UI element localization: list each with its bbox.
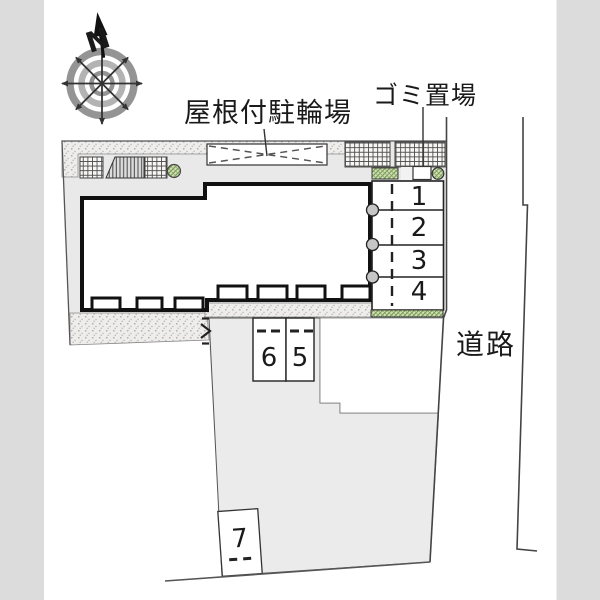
parking-space-7: 7: [218, 509, 262, 577]
garbage-area-pad-right: [395, 142, 445, 167]
road-label: 道路: [456, 328, 516, 361]
meter-post: [367, 271, 379, 283]
shrub: [168, 165, 181, 178]
space-3-number: 3: [411, 246, 428, 276]
adjacent-lot-notch: [320, 318, 444, 413]
site-plan-canvas: 1 2 3 4 6 5 7 屋根付駐輪場: [0, 0, 600, 600]
space-2-number: 2: [411, 213, 428, 243]
right-margin-band: [557, 0, 600, 600]
parking-middle-pair: 6 5: [253, 318, 314, 381]
space-1-number: 1: [411, 182, 428, 212]
parking-column-east: 1 2 3 4: [367, 181, 444, 317]
planter-strip: [372, 168, 398, 179]
garbage-area-pad-left: [345, 142, 390, 167]
space-6-number: 6: [261, 343, 278, 373]
meter-post: [367, 239, 379, 251]
bicycle-parking-label: 屋根付駐輪場: [184, 98, 352, 129]
space-7-number: 7: [230, 523, 249, 554]
garbage-area-label: ゴミ置場: [373, 81, 477, 110]
garbage-bin-box: [413, 167, 431, 180]
left-margin-band: [0, 0, 44, 600]
site-plan-svg: 1 2 3 4 6 5 7 屋根付駐輪場: [0, 0, 600, 600]
shrub-right: [432, 168, 444, 180]
space-5-number: 5: [292, 343, 309, 373]
hedge-strip: [371, 310, 443, 317]
utility-pad: [401, 167, 413, 180]
meter-post: [367, 204, 379, 216]
space-4-number: 4: [411, 277, 428, 307]
